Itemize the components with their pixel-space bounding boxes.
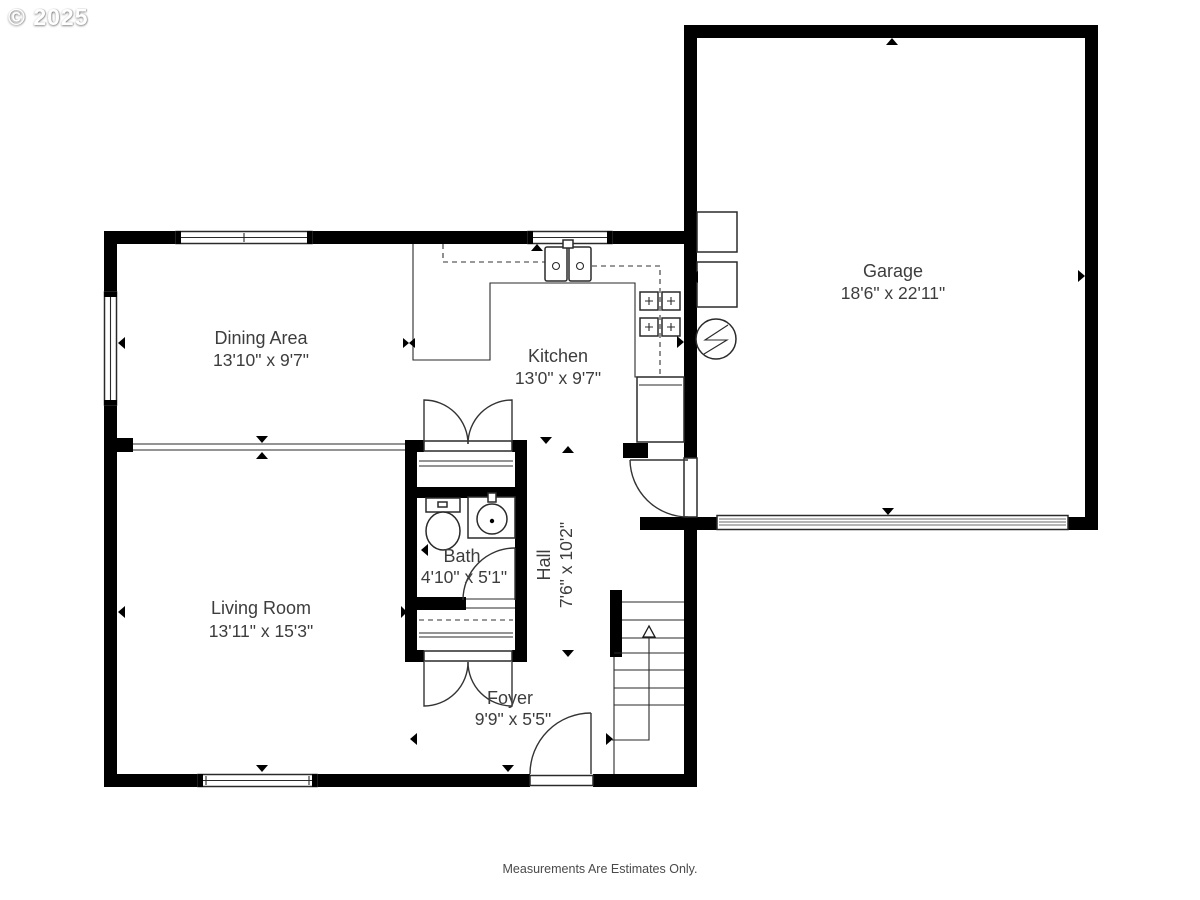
bath-label: Bath xyxy=(443,546,480,566)
hall-label-group: Hall 7'6" x 10'2" xyxy=(534,522,576,608)
windows xyxy=(104,231,612,787)
floor-plan-page: © 2025 xyxy=(0,0,1200,900)
hall-dims: 7'6" x 10'2" xyxy=(556,522,576,608)
living-room-window xyxy=(198,774,317,787)
closet-double-door-right xyxy=(468,400,512,444)
kitchen-dims: 13'0" x 9'7" xyxy=(515,368,601,388)
water-heater-icon xyxy=(697,212,737,252)
staircase xyxy=(612,602,684,740)
closet-double-door-left xyxy=(424,400,468,444)
closet-top xyxy=(419,400,513,466)
living-room-dims: 13'11" x 15'3" xyxy=(209,621,313,641)
garage-door-icon xyxy=(717,516,1068,530)
dining-area-label: Dining Area xyxy=(214,328,308,348)
dining-area-dims: 13'10" x 9'7" xyxy=(213,350,309,370)
garage-dims: 18'6" x 22'11" xyxy=(841,283,945,303)
kitchen-label: Kitchen xyxy=(528,346,588,366)
garage-entry-door xyxy=(630,458,697,517)
closet-double-door-left xyxy=(424,662,468,706)
furnace-icon xyxy=(697,262,737,307)
dimension-markers xyxy=(118,38,1085,772)
floor-plan: Dining Area 13'10" x 9'7" Kitchen 13'0" … xyxy=(0,0,1200,900)
electrical-panel-icon xyxy=(696,319,736,359)
living-room-label: Living Room xyxy=(211,598,311,618)
foyer-label: Foyer xyxy=(487,688,533,708)
garage-label: Garage xyxy=(863,261,923,281)
bath-dims: 4'10" x 5'1" xyxy=(421,567,507,587)
upper-cabinets-dashed xyxy=(443,244,545,262)
exterior-walls xyxy=(104,25,1098,787)
dining-left-window xyxy=(104,292,117,405)
kitchen-sink-icon xyxy=(545,240,591,281)
copyright-watermark: © 2025 xyxy=(8,4,89,31)
toilet-icon xyxy=(426,498,460,550)
dining-top-window xyxy=(176,231,312,244)
hall-label: Hall xyxy=(534,549,554,580)
vanity-sink-icon xyxy=(468,493,515,538)
foyer-dims: 9'9" x 5'5" xyxy=(475,709,552,729)
fridge-icon xyxy=(637,377,684,442)
disclaimer-text: Measurements Are Estimates Only. xyxy=(503,862,698,876)
